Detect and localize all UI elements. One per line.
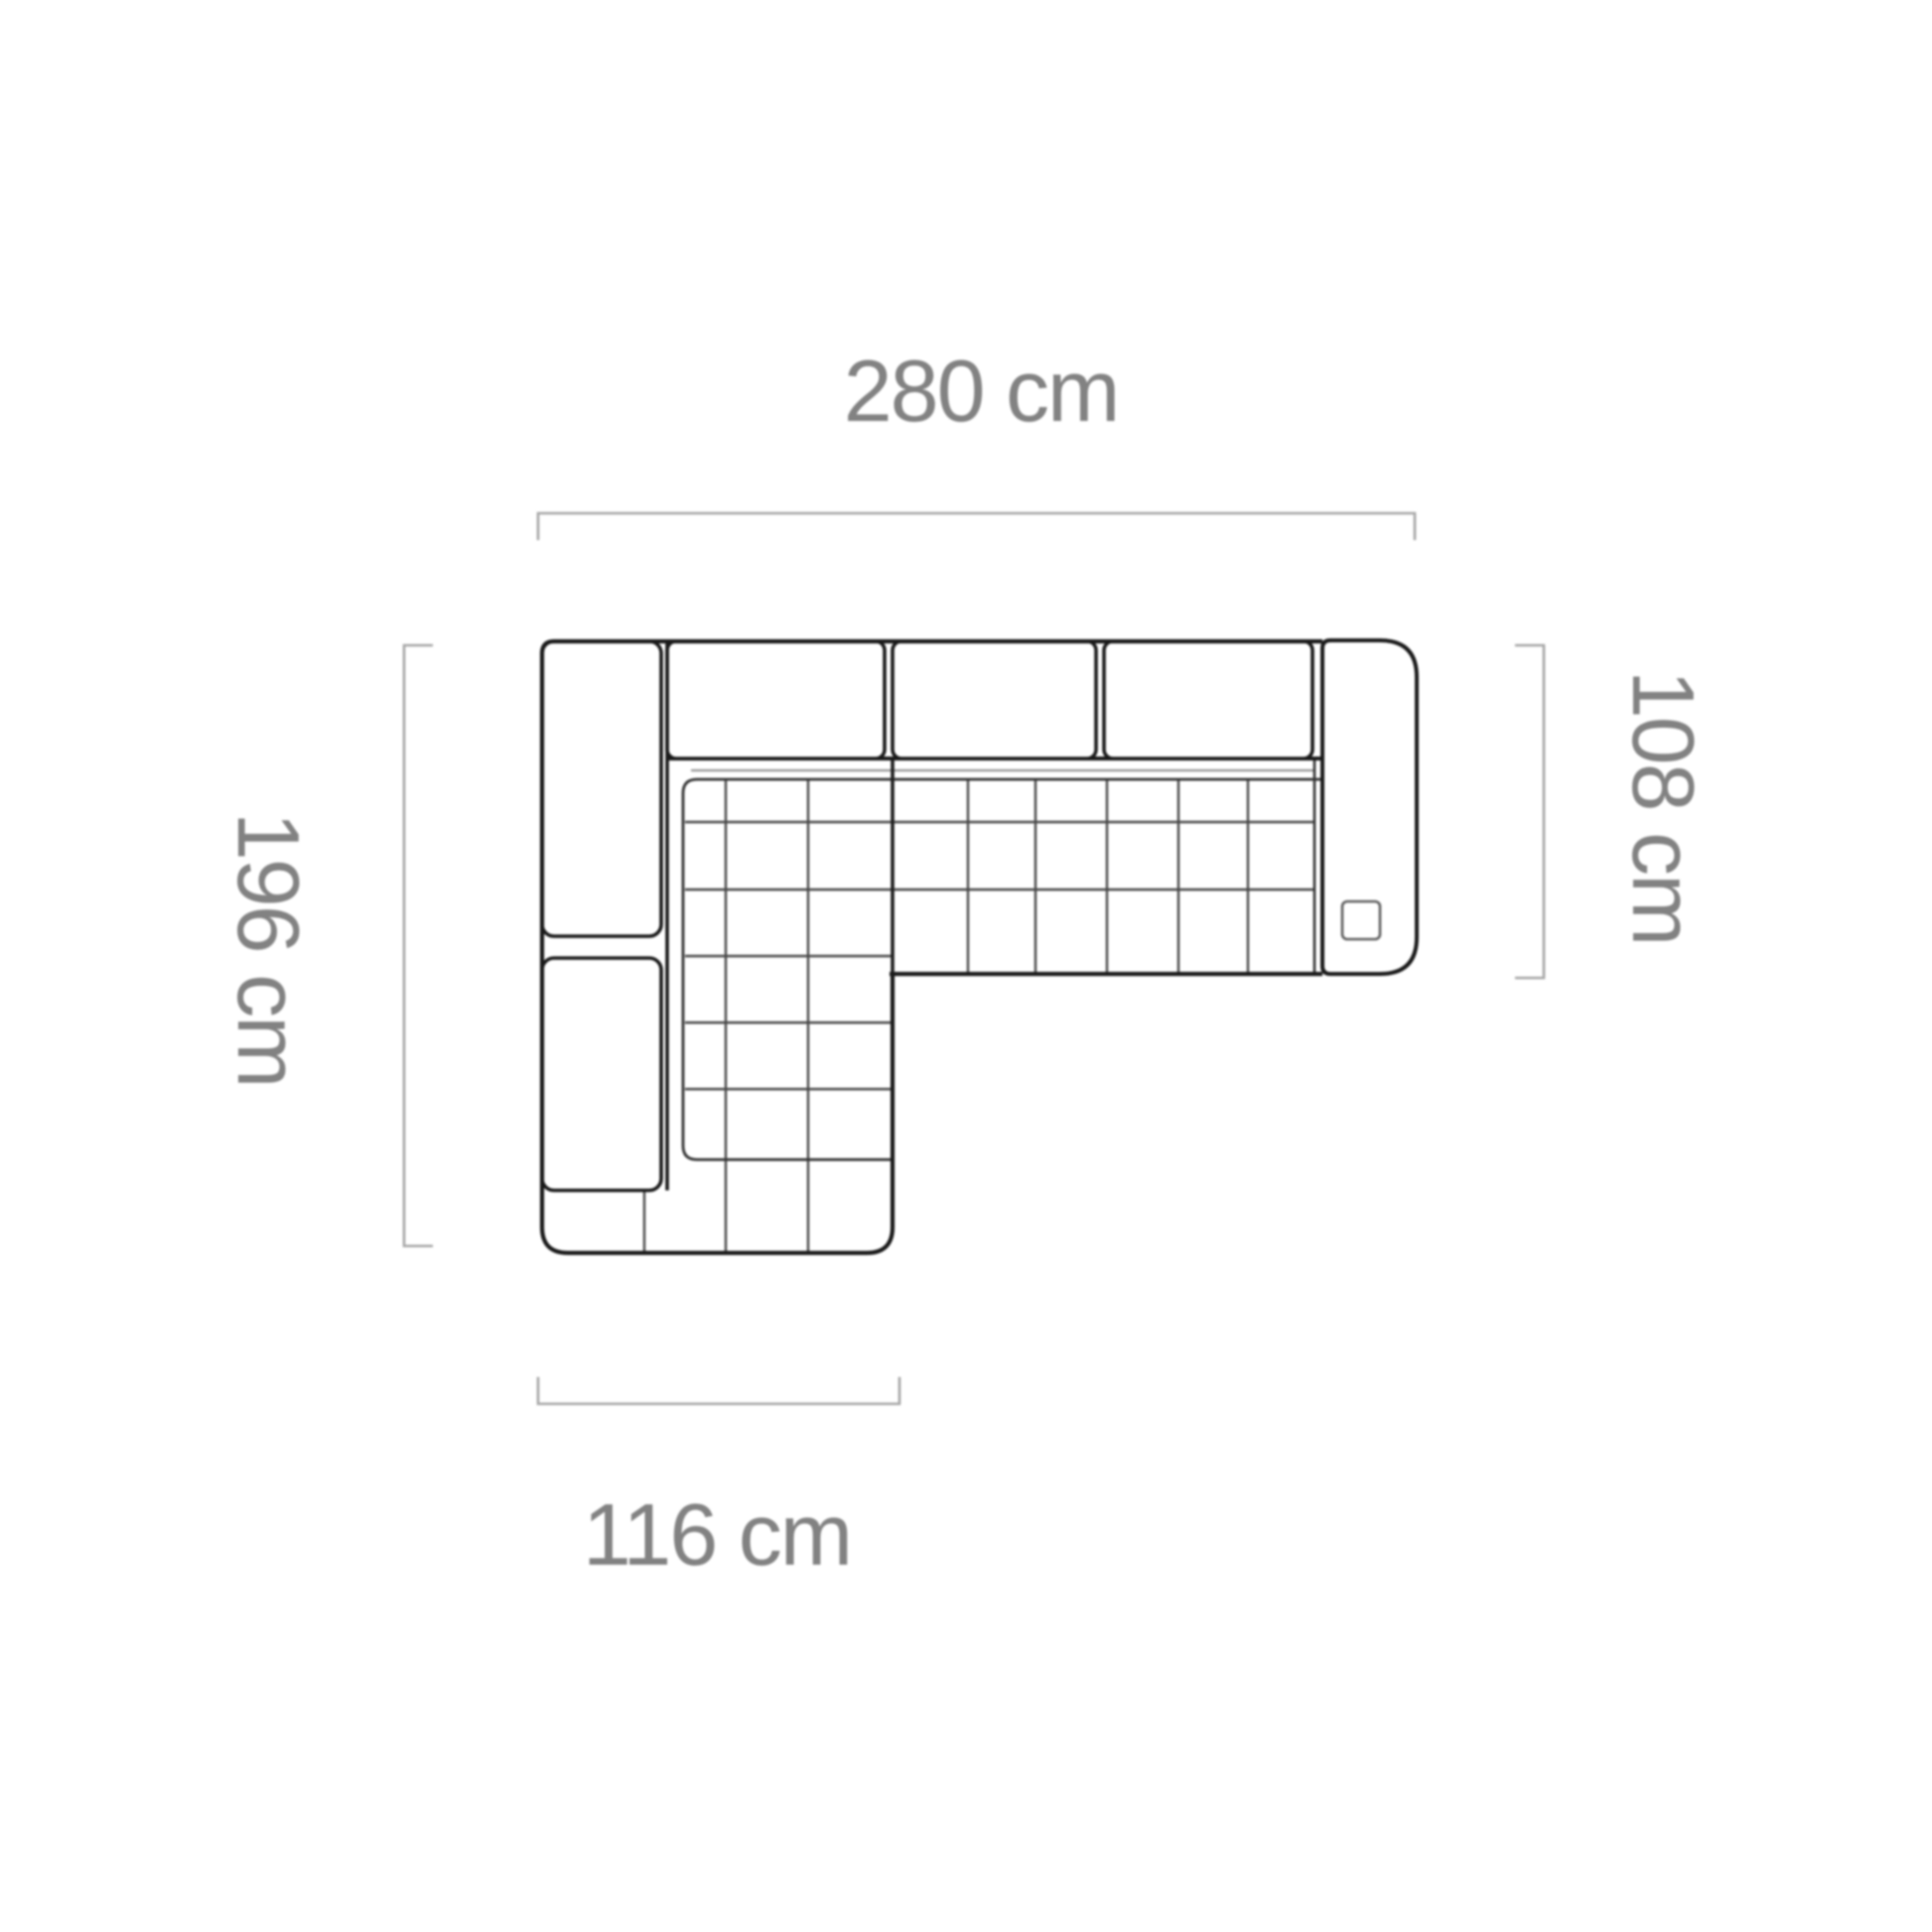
svg-text:196 cm: 196 cm [219,812,318,1087]
svg-text:108 cm: 108 cm [1614,670,1713,945]
svg-text:116 cm: 116 cm [583,1485,851,1584]
svg-text:280 cm: 280 cm [844,342,1119,440]
